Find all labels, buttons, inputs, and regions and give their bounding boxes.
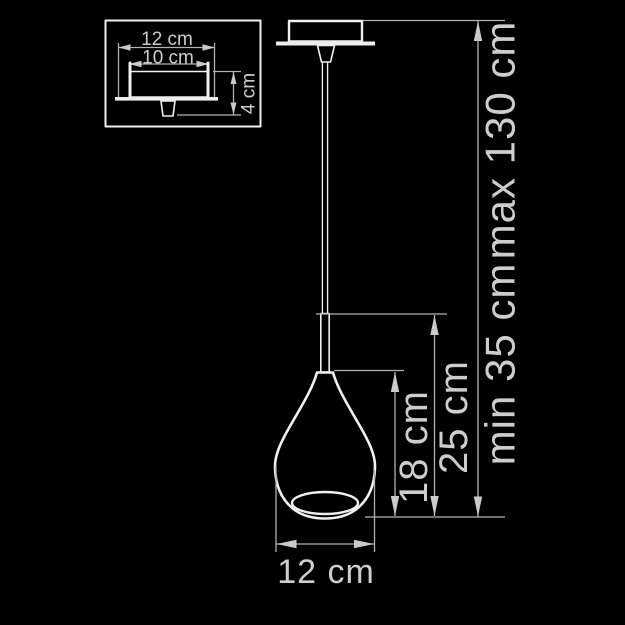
shade-height-label: 18 cm (392, 390, 436, 504)
inset-inner-width-label: 10 cm (142, 48, 194, 69)
body-height-label: 25 cm (432, 360, 476, 474)
pendant-lamp-dimension-diagram: 12 cm 10 cm (0, 0, 625, 625)
suspension-max-label: max 130 cm (477, 21, 524, 260)
shade-width-label: 12 cm (277, 553, 375, 591)
inset-height-label: 4 cm (239, 73, 260, 114)
diagram-background (0, 0, 625, 625)
inset-ceiling-plate (115, 97, 218, 101)
suspension-min-label: min 35 cm (477, 263, 524, 466)
